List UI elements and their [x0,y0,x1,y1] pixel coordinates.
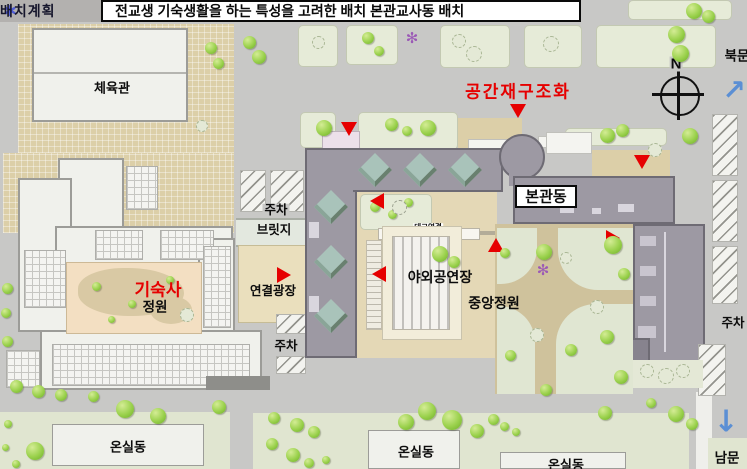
tree-icon [88,391,99,402]
tree-icon [442,410,462,430]
outdoor-stage-label: 야외공연장 [408,270,472,284]
tree-icon [543,36,559,52]
tree-icon [252,50,266,64]
building-detail [664,232,666,352]
header-section: ✱ 배치계획 [0,0,101,22]
dorm-roof-grid [203,246,231,328]
tree-icon [212,400,226,414]
tree-icon [4,420,12,428]
building-detail [638,326,656,338]
red-marker-icon [372,266,386,282]
tree-icon [128,300,136,308]
gazebo-sketch [392,200,407,215]
tree-icon [304,458,314,468]
small-structure [546,132,592,154]
dormitory-garden-label: 정원 [143,300,168,314]
tree-icon [600,128,615,143]
tree-icon [1,308,11,318]
annex-roof [126,166,158,210]
tree-icon [500,422,509,431]
tree-icon [658,368,674,384]
site-plan: 체육관 기숙사 정원 주차 브릿지 연결광장 주차 [0,0,747,469]
building-detail [309,222,319,238]
tree-icon [266,438,278,450]
tree-icon [55,389,67,401]
tree-icon [590,300,604,314]
tree-icon [213,58,224,69]
tree-icon [268,412,280,424]
tree-icon [420,120,436,136]
tree-icon [432,246,448,262]
greenhouse-label-3: 온실동 [548,459,584,469]
planter-bed [596,25,716,68]
tree-icon [150,408,166,424]
tree-icon [500,248,510,258]
tree-icon [402,126,412,136]
tree-icon [286,448,300,462]
parking-stripes [712,246,738,304]
tree-icon [108,316,115,323]
tree-icon [604,236,622,254]
red-marker-icon [634,155,650,169]
page-title: 전교생 기숙생활을 하는 특성을 고려한 배치 본관교사동 배치 [101,0,581,22]
parking-label-southwest: 주차 [274,340,297,353]
stage-steps [366,240,382,330]
tree-icon [2,336,13,347]
planter-bed [346,25,398,65]
tree-icon [452,34,466,48]
tree-icon [540,384,552,396]
tree-icon [2,444,9,451]
tree-icon [646,398,656,408]
tree-icon [672,45,689,62]
north-gate-arrow-icon: ↗ [722,74,745,107]
red-marker-icon [510,104,526,118]
tree-icon [702,10,715,23]
tree-icon [668,406,684,422]
red-marker-icon [341,122,357,136]
dorm-roof-grid [24,250,66,308]
building-detail [640,266,656,276]
tree-icon [466,46,482,62]
tree-icon [180,308,194,322]
tree-icon [448,256,460,268]
dorm-roof-grid [95,230,143,260]
tree-icon [116,400,134,418]
tree-icon [243,36,256,49]
central-garden-label: 중앙정원 [468,296,520,310]
tree-icon [196,120,208,132]
red-marker-icon [277,267,291,283]
dormitory-label: 기숙사 [135,282,182,299]
tree-icon [32,385,45,398]
building-detail [309,296,319,312]
tree-icon [488,414,499,425]
tree-icon [374,46,384,56]
tree-icon [560,252,572,264]
parking-stripes [276,314,306,334]
tree-icon [2,283,13,294]
tree-icon [616,124,629,137]
south-gate-arrow-icon: ↓ [713,405,738,440]
tree-icon [418,402,436,420]
building-detail [640,296,656,306]
parking-stripes [276,356,306,374]
tree-icon [668,26,685,43]
tree-icon [205,42,217,54]
tree-icon [92,282,101,291]
tree-icon [598,406,612,420]
tree-icon [308,426,320,438]
tree-icon [600,330,614,344]
tree-icon [505,350,516,361]
planter-bed [628,0,732,20]
tree-icon [648,143,662,157]
gym-building [32,28,188,122]
tree-icon [12,460,20,468]
tree-icon [470,424,484,438]
gym-label: 체육관 [94,82,130,95]
parking-label-west: 주차 [262,204,289,217]
tree-icon [536,244,552,260]
tree-icon [640,364,654,378]
building-detail [640,236,656,246]
flower-icon: ✻ [406,29,419,47]
parking-stripes [712,180,738,242]
tree-icon [512,428,520,436]
parking-label-east: 주차 [721,317,744,330]
link-plaza-label: 연결광장 [250,285,296,298]
building-detail [592,208,601,214]
tree-icon [686,3,702,19]
parking-stripes [712,114,738,176]
building-detail [618,204,634,212]
compass-cross-v [677,68,680,120]
north-gate-label: 북문 [725,49,747,63]
tree-icon [618,268,630,280]
south-gate-label: 남문 [715,451,740,465]
tree-icon [398,414,414,430]
tree-icon [362,32,374,44]
flower-icon: ✻ [537,261,550,279]
dorm-wall [206,376,270,390]
space-restructuring-label: 공간재구조화 [465,84,571,101]
tree-icon [290,418,304,432]
greenhouse-label-1: 온실동 [110,441,146,454]
gym-divider [34,72,186,74]
tree-icon [682,128,698,144]
tree-icon [614,370,628,384]
tree-icon [676,364,690,378]
section-title: 배치계획 [0,1,56,21]
red-marker-icon [370,193,384,209]
tree-icon [322,456,330,464]
compass-icon [660,76,700,116]
tree-icon [26,442,44,460]
bridge-label: 브릿지 [257,224,292,237]
tree-icon [565,344,577,356]
main-building-label: 본관동 [525,190,566,205]
tree-icon [385,118,398,131]
greenhouse-label-2: 온실동 [398,446,434,459]
tree-icon [316,120,332,136]
tree-icon [10,380,23,393]
tree-icon [530,328,544,342]
tree-icon [686,418,698,430]
tree-icon [312,36,325,49]
